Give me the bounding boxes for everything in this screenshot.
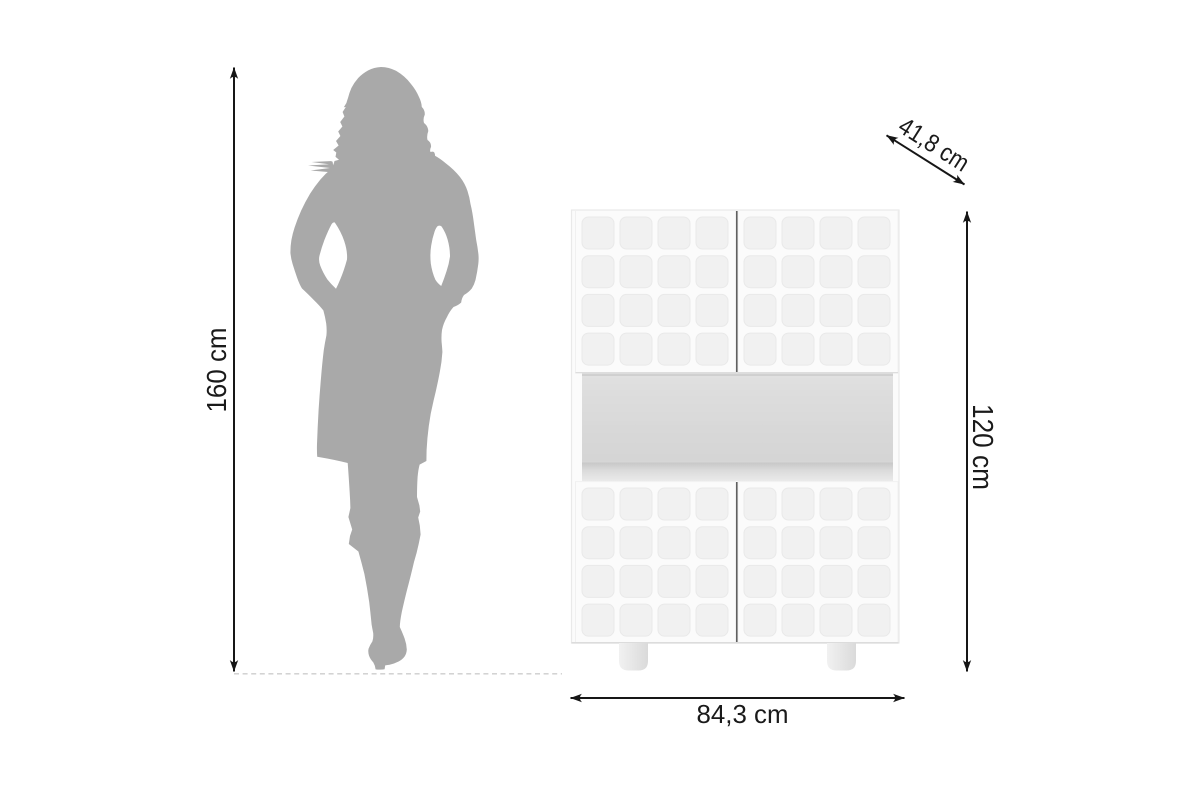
svg-text:160 cm: 160 cm [201,328,232,413]
svg-text:84,3 cm: 84,3 cm [697,699,789,729]
svg-text:120 cm: 120 cm [966,404,998,490]
svg-text:41,8 cm: 41,8 cm [893,112,974,177]
